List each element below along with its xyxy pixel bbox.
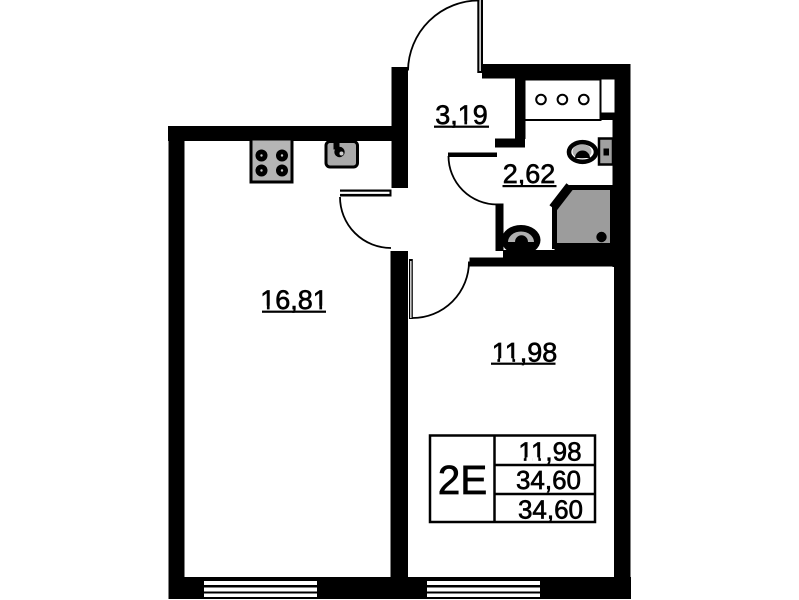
svg-text:2E: 2E xyxy=(438,457,488,503)
svg-text:2,62: 2,62 xyxy=(503,159,556,189)
svg-text:3,19: 3,19 xyxy=(435,100,488,130)
svg-text:34,60: 34,60 xyxy=(518,495,583,525)
svg-text:34,60: 34,60 xyxy=(516,465,581,495)
svg-text:11,98: 11,98 xyxy=(518,437,581,467)
svg-text:16,81: 16,81 xyxy=(260,285,328,315)
